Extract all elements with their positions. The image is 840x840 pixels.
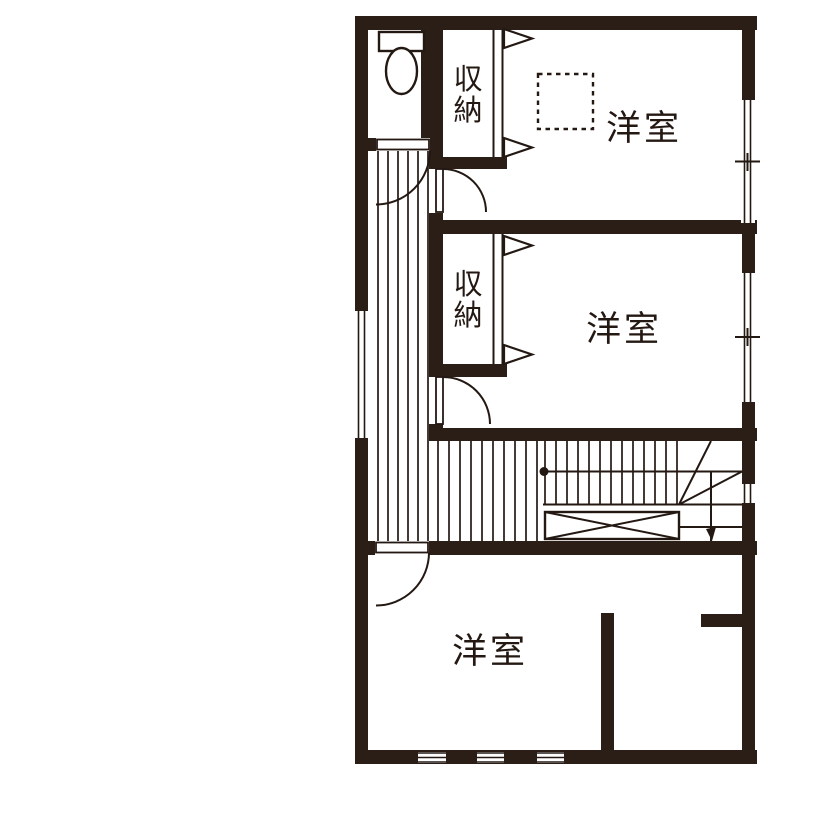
window-bedroom-top-right: [735, 100, 760, 223]
toilet-icon: [379, 32, 424, 94]
outer-wall-top: [355, 16, 757, 30]
window-stair-right: [741, 484, 755, 503]
closet-middle-door-arrow-bottom: [504, 345, 532, 364]
closet-middle-door: [494, 234, 533, 364]
bedroom-middle-door-leaf: [436, 377, 443, 424]
bedroom-bottom-door-leaf: [376, 543, 428, 553]
wall-bedroom-top-bottom: [429, 220, 757, 234]
bedroom-middle-door: [429, 377, 490, 424]
bedroom-bottom-label: 洋室: [452, 632, 528, 672]
stair-direction-start-dot: [540, 467, 549, 476]
toilet-door-swing: [376, 151, 430, 205]
bedroom-bottom-door: [375, 541, 429, 606]
closet-middle-door-arrow-top: [504, 236, 532, 255]
bedroom-bottom-door-swing: [376, 553, 429, 606]
bedroom-top-door-swing: [443, 169, 486, 212]
window-bottom-3: [537, 752, 564, 763]
toilet-bowl: [386, 48, 417, 94]
stair-hall-stripes: [438, 441, 537, 541]
closet-top-door-arrow-bottom: [504, 138, 532, 157]
toilet-door: [376, 138, 430, 205]
window-bottom-2: [477, 752, 504, 763]
floor-plan-svg: 洋室 洋室 洋室 収 納 収 納: [0, 0, 840, 840]
closet-top-label-char1: 収: [453, 62, 482, 96]
closet-top-door: [494, 29, 533, 157]
toilet-door-leaf: [377, 140, 429, 150]
bedroom-top-label: 洋室: [606, 109, 682, 149]
wall-closet-middle-bottom: [429, 364, 507, 377]
hatch-dashed-square: [538, 74, 593, 129]
closet-top-door-arrow-top: [504, 29, 532, 48]
staircase: [540, 441, 743, 541]
wall-bottom-room-stub: [701, 614, 755, 627]
hallway-stripes: [378, 151, 428, 541]
stair-direction-arrow: [706, 527, 716, 541]
bedroom-middle-label: 洋室: [586, 310, 662, 350]
bedroom-top-door-leaf: [436, 169, 443, 212]
window-bedroom-middle-right: [735, 273, 760, 402]
floor-plan-page: 洋室 洋室 洋室 収 納 収 納: [0, 0, 840, 840]
wall-bottom-room-partition: [601, 613, 614, 752]
wall-closet-top-bottom: [429, 157, 507, 169]
closet-top-label-char2: 納: [453, 93, 482, 127]
wall-stair-top: [429, 428, 757, 441]
bedroom-middle-door-swing: [443, 377, 490, 424]
closet-middle-label-char2: 納: [453, 298, 482, 332]
winder-line-1: [679, 441, 711, 505]
window-bottom-1: [418, 752, 446, 763]
window-left-hallway: [355, 311, 368, 438]
closet-middle-label-char1: 収: [453, 267, 482, 301]
bedroom-top-door: [429, 169, 486, 213]
